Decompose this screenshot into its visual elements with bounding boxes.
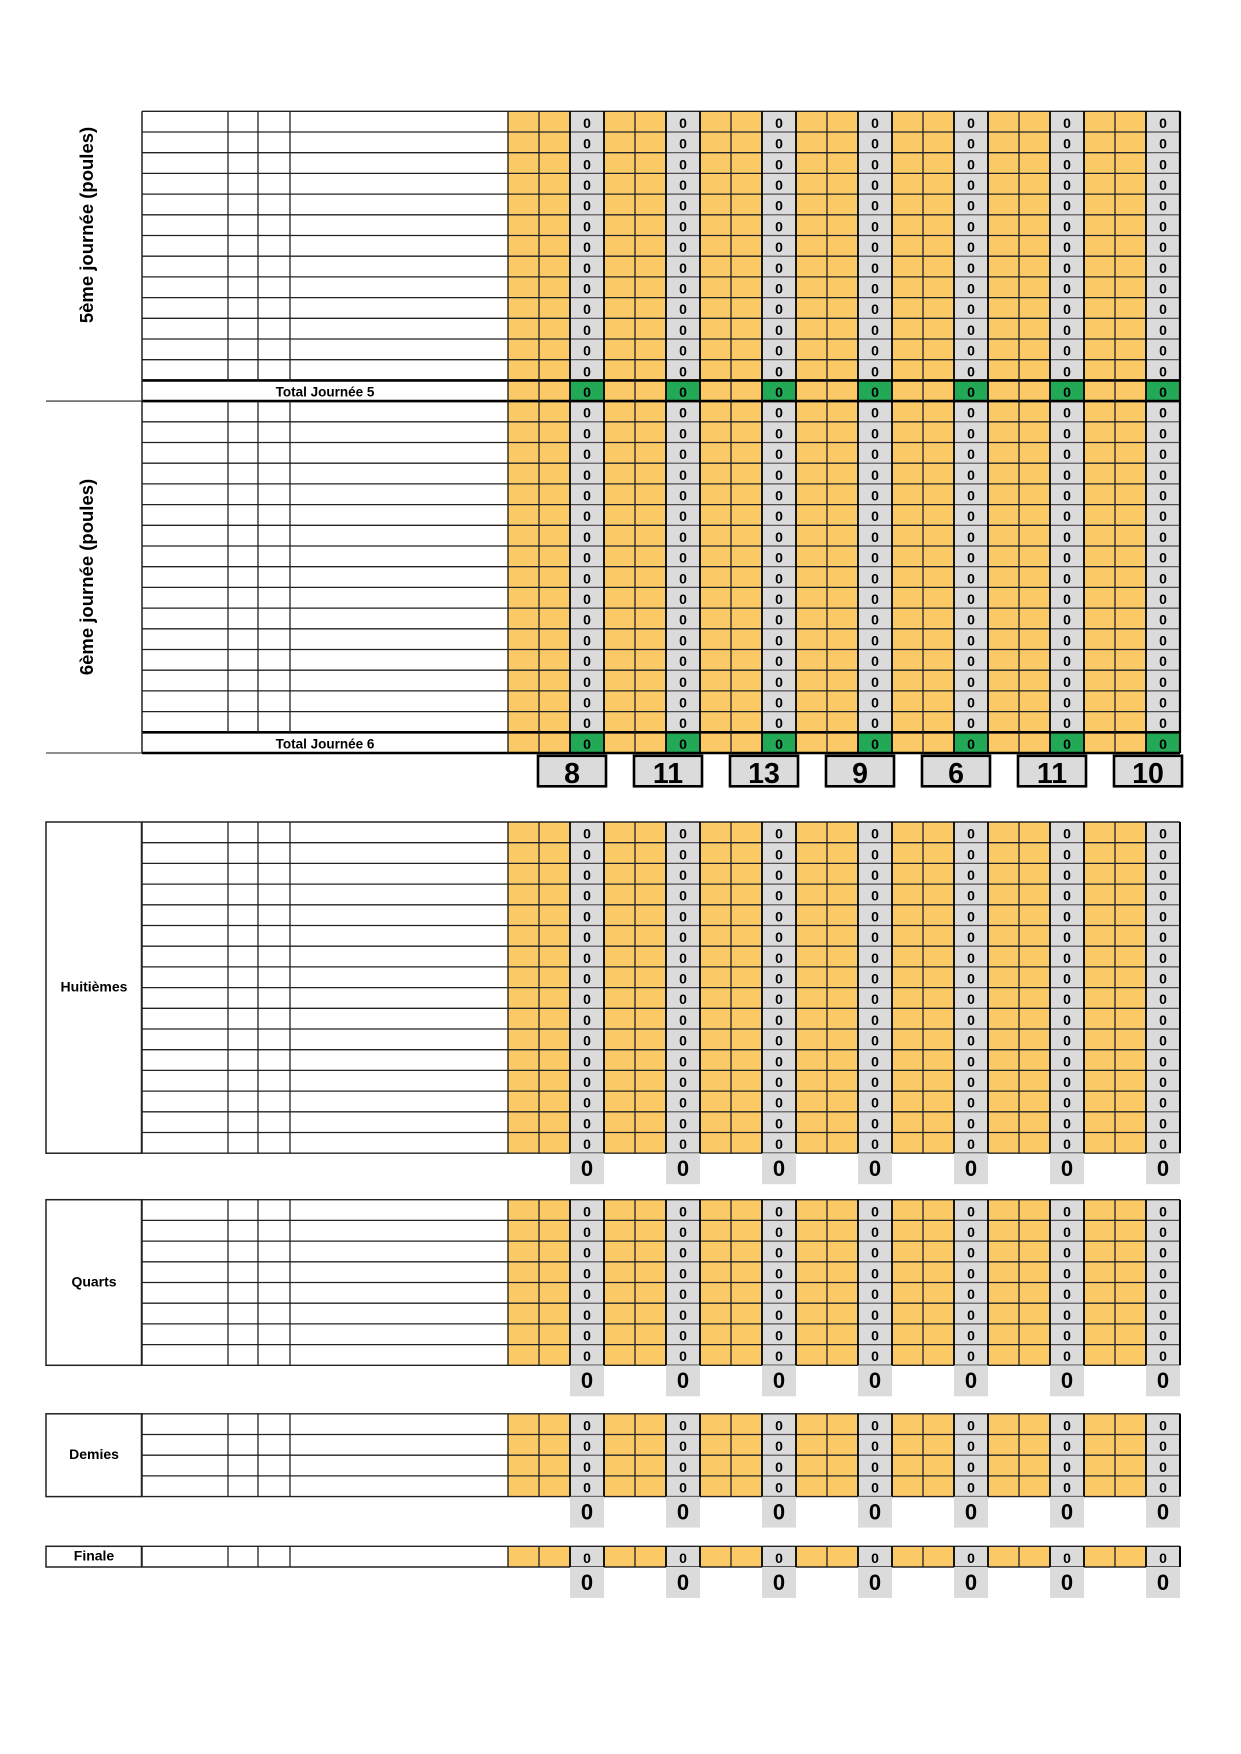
svg-text:0: 0: [583, 1033, 591, 1049]
svg-text:0: 0: [583, 1307, 591, 1323]
svg-text:0: 0: [1159, 653, 1167, 669]
svg-text:0: 0: [775, 467, 783, 483]
svg-text:0: 0: [871, 1307, 879, 1323]
svg-text:0: 0: [775, 1286, 783, 1302]
svg-text:0: 0: [1159, 1095, 1167, 1111]
svg-text:0: 0: [1063, 674, 1071, 690]
svg-text:0: 0: [871, 736, 879, 752]
svg-text:0: 0: [1063, 1245, 1071, 1261]
svg-text:0: 0: [1159, 715, 1167, 731]
svg-text:0: 0: [773, 1156, 785, 1181]
svg-text:0: 0: [679, 846, 687, 862]
svg-text:0: 0: [1159, 550, 1167, 566]
svg-text:0: 0: [967, 591, 975, 607]
svg-text:0: 0: [679, 1033, 687, 1049]
svg-text:0: 0: [1159, 1115, 1167, 1131]
svg-text:0: 0: [869, 1499, 881, 1524]
svg-text:0: 0: [1159, 1550, 1167, 1566]
svg-text:0: 0: [679, 908, 687, 924]
svg-text:0: 0: [1159, 929, 1167, 945]
svg-text:0: 0: [775, 674, 783, 690]
svg-text:Finale: Finale: [74, 1548, 115, 1564]
svg-text:0: 0: [775, 570, 783, 586]
svg-text:0: 0: [583, 1053, 591, 1069]
svg-text:0: 0: [871, 488, 879, 504]
svg-text:0: 0: [583, 405, 591, 421]
svg-text:0: 0: [871, 971, 879, 987]
svg-text:0: 0: [1063, 653, 1071, 669]
svg-text:0: 0: [1063, 281, 1071, 297]
svg-text:0: 0: [583, 826, 591, 842]
svg-text:0: 0: [583, 1328, 591, 1344]
svg-text:0: 0: [967, 156, 975, 172]
svg-text:0: 0: [583, 488, 591, 504]
svg-text:0: 0: [871, 1033, 879, 1049]
svg-text:0: 0: [871, 612, 879, 628]
svg-text:0: 0: [679, 467, 687, 483]
svg-text:0: 0: [1063, 425, 1071, 441]
svg-text:0: 0: [775, 218, 783, 234]
svg-text:0: 0: [583, 260, 591, 276]
svg-text:0: 0: [967, 1136, 975, 1152]
svg-text:0: 0: [775, 1074, 783, 1090]
svg-text:0: 0: [679, 1480, 687, 1496]
svg-text:0: 0: [967, 550, 975, 566]
svg-text:0: 0: [679, 322, 687, 338]
svg-text:0: 0: [967, 198, 975, 214]
svg-text:0: 0: [1063, 736, 1071, 752]
svg-text:0: 0: [967, 867, 975, 883]
svg-text:0: 0: [967, 1245, 975, 1261]
svg-text:0: 0: [677, 1499, 689, 1524]
svg-text:0: 0: [1159, 508, 1167, 524]
svg-text:0: 0: [775, 1348, 783, 1364]
svg-text:0: 0: [1063, 405, 1071, 421]
svg-text:0: 0: [871, 177, 879, 193]
svg-text:0: 0: [583, 115, 591, 131]
svg-text:0: 0: [871, 508, 879, 524]
svg-text:11: 11: [1037, 758, 1067, 790]
svg-text:0: 0: [871, 1438, 879, 1454]
svg-text:0: 0: [583, 467, 591, 483]
svg-text:0: 0: [967, 446, 975, 462]
svg-text:0: 0: [1063, 177, 1071, 193]
svg-text:0: 0: [775, 715, 783, 731]
svg-text:0: 0: [967, 632, 975, 648]
svg-text:0: 0: [871, 653, 879, 669]
svg-text:0: 0: [1159, 1245, 1167, 1261]
svg-text:0: 0: [1159, 1459, 1167, 1475]
svg-text:0: 0: [583, 508, 591, 524]
svg-text:0: 0: [679, 715, 687, 731]
svg-text:0: 0: [871, 674, 879, 690]
svg-text:0: 0: [583, 867, 591, 883]
svg-text:0: 0: [679, 405, 687, 421]
svg-text:0: 0: [773, 1368, 785, 1393]
svg-text:0: 0: [583, 570, 591, 586]
svg-text:0: 0: [1063, 322, 1071, 338]
svg-text:0: 0: [679, 281, 687, 297]
svg-text:0: 0: [1063, 1203, 1071, 1219]
svg-text:0: 0: [1159, 529, 1167, 545]
svg-text:0: 0: [775, 1417, 783, 1433]
svg-text:0: 0: [871, 1224, 879, 1240]
svg-text:0: 0: [967, 529, 975, 545]
svg-text:0: 0: [1159, 260, 1167, 276]
svg-text:0: 0: [679, 674, 687, 690]
svg-text:0: 0: [679, 653, 687, 669]
svg-text:0: 0: [677, 1570, 689, 1595]
svg-text:0: 0: [679, 156, 687, 172]
svg-text:0: 0: [775, 1265, 783, 1281]
svg-text:0: 0: [967, 467, 975, 483]
svg-text:0: 0: [1159, 1224, 1167, 1240]
svg-text:0: 0: [967, 1438, 975, 1454]
svg-text:0: 0: [775, 198, 783, 214]
svg-text:0: 0: [583, 1095, 591, 1111]
svg-text:0: 0: [1159, 1265, 1167, 1281]
svg-text:0: 0: [1159, 695, 1167, 711]
svg-text:0: 0: [679, 1550, 687, 1566]
svg-text:0: 0: [679, 1286, 687, 1302]
svg-text:0: 0: [679, 1265, 687, 1281]
svg-text:0: 0: [679, 301, 687, 317]
svg-text:0: 0: [1063, 467, 1071, 483]
svg-text:0: 0: [679, 446, 687, 462]
svg-text:0: 0: [1063, 867, 1071, 883]
svg-text:0: 0: [775, 363, 783, 379]
svg-text:0: 0: [1159, 1053, 1167, 1069]
svg-text:0: 0: [775, 446, 783, 462]
svg-text:0: 0: [677, 1368, 689, 1393]
svg-text:0: 0: [871, 1459, 879, 1475]
svg-text:0: 0: [1063, 1053, 1071, 1069]
svg-text:0: 0: [967, 1224, 975, 1240]
svg-text:0: 0: [1063, 715, 1071, 731]
svg-text:0: 0: [679, 136, 687, 152]
svg-text:0: 0: [583, 1012, 591, 1028]
svg-text:0: 0: [1159, 156, 1167, 172]
svg-text:0: 0: [871, 425, 879, 441]
svg-text:0: 0: [679, 1245, 687, 1261]
svg-text:0: 0: [871, 846, 879, 862]
svg-text:0: 0: [1063, 1136, 1071, 1152]
svg-text:0: 0: [679, 550, 687, 566]
svg-text:0: 0: [775, 260, 783, 276]
svg-text:0: 0: [967, 950, 975, 966]
svg-text:0: 0: [1063, 1417, 1071, 1433]
svg-text:0: 0: [583, 653, 591, 669]
svg-text:0: 0: [581, 1499, 593, 1524]
svg-text:0: 0: [679, 867, 687, 883]
svg-text:13: 13: [748, 758, 780, 790]
svg-text:5ème journée (poules): 5ème journée (poules): [76, 127, 97, 323]
svg-text:0: 0: [1063, 971, 1071, 987]
svg-text:Total Journée 6: Total Journée 6: [276, 736, 375, 751]
svg-text:0: 0: [967, 239, 975, 255]
svg-text:0: 0: [583, 384, 591, 400]
svg-text:0: 0: [1063, 1348, 1071, 1364]
svg-text:0: 0: [1159, 446, 1167, 462]
svg-text:0: 0: [871, 467, 879, 483]
svg-text:0: 0: [775, 591, 783, 607]
svg-text:0: 0: [967, 322, 975, 338]
svg-text:0: 0: [775, 695, 783, 711]
svg-text:10: 10: [1132, 758, 1164, 790]
svg-text:0: 0: [679, 1417, 687, 1433]
svg-text:0: 0: [679, 1136, 687, 1152]
svg-text:0: 0: [679, 1012, 687, 1028]
svg-text:0: 0: [967, 653, 975, 669]
svg-text:0: 0: [775, 529, 783, 545]
svg-text:0: 0: [583, 950, 591, 966]
svg-text:0: 0: [679, 632, 687, 648]
svg-text:0: 0: [775, 550, 783, 566]
svg-text:0: 0: [583, 1348, 591, 1364]
svg-text:0: 0: [1159, 971, 1167, 987]
svg-text:0: 0: [775, 1224, 783, 1240]
svg-text:0: 0: [679, 888, 687, 904]
svg-text:0: 0: [871, 529, 879, 545]
svg-text:0: 0: [967, 405, 975, 421]
svg-text:0: 0: [775, 929, 783, 945]
svg-text:0: 0: [1159, 736, 1167, 752]
svg-text:0: 0: [1063, 218, 1071, 234]
svg-text:0: 0: [871, 1115, 879, 1131]
svg-text:0: 0: [1159, 136, 1167, 152]
svg-text:0: 0: [1159, 846, 1167, 862]
svg-text:0: 0: [583, 301, 591, 317]
svg-text:0: 0: [581, 1368, 593, 1393]
svg-text:0: 0: [583, 1480, 591, 1496]
svg-text:0: 0: [871, 950, 879, 966]
svg-text:0: 0: [679, 971, 687, 987]
svg-text:0: 0: [679, 529, 687, 545]
svg-text:0: 0: [1063, 826, 1071, 842]
svg-text:0: 0: [679, 1307, 687, 1323]
svg-text:Quarts: Quarts: [71, 1273, 116, 1289]
svg-text:0: 0: [775, 508, 783, 524]
svg-text:0: 0: [775, 612, 783, 628]
svg-text:0: 0: [967, 1480, 975, 1496]
svg-text:0: 0: [967, 991, 975, 1007]
svg-text:9: 9: [852, 758, 868, 790]
svg-text:0: 0: [967, 826, 975, 842]
svg-text:0: 0: [775, 425, 783, 441]
svg-text:0: 0: [967, 1328, 975, 1344]
svg-text:0: 0: [967, 384, 975, 400]
svg-text:0: 0: [775, 1480, 783, 1496]
svg-text:0: 0: [1159, 612, 1167, 628]
svg-text:0: 0: [1063, 1033, 1071, 1049]
svg-text:0: 0: [1063, 136, 1071, 152]
svg-text:0: 0: [775, 867, 783, 883]
svg-text:0: 0: [871, 218, 879, 234]
svg-text:0: 0: [775, 908, 783, 924]
svg-text:0: 0: [1159, 1136, 1167, 1152]
svg-text:0: 0: [1063, 1438, 1071, 1454]
svg-text:0: 0: [871, 632, 879, 648]
svg-text:0: 0: [871, 1480, 879, 1496]
svg-text:0: 0: [869, 1570, 881, 1595]
svg-text:0: 0: [871, 1550, 879, 1566]
svg-text:0: 0: [967, 1012, 975, 1028]
svg-text:0: 0: [775, 826, 783, 842]
svg-text:0: 0: [679, 612, 687, 628]
svg-text:0: 0: [1063, 1550, 1071, 1566]
svg-text:0: 0: [871, 115, 879, 131]
svg-text:0: 0: [1063, 570, 1071, 586]
svg-text:0: 0: [871, 301, 879, 317]
svg-text:0: 0: [583, 1074, 591, 1090]
svg-text:0: 0: [1159, 1033, 1167, 1049]
svg-text:0: 0: [775, 1459, 783, 1475]
svg-text:0: 0: [583, 591, 591, 607]
svg-text:0: 0: [1159, 301, 1167, 317]
svg-text:0: 0: [871, 991, 879, 1007]
svg-text:0: 0: [967, 136, 975, 152]
svg-text:0: 0: [1159, 363, 1167, 379]
svg-text:0: 0: [583, 888, 591, 904]
svg-text:0: 0: [871, 570, 879, 586]
svg-text:0: 0: [775, 1095, 783, 1111]
svg-text:0: 0: [679, 736, 687, 752]
svg-text:0: 0: [967, 363, 975, 379]
svg-text:0: 0: [965, 1156, 977, 1181]
svg-text:0: 0: [775, 1012, 783, 1028]
svg-text:0: 0: [583, 363, 591, 379]
svg-text:0: 0: [1063, 950, 1071, 966]
svg-text:0: 0: [1159, 488, 1167, 504]
svg-text:0: 0: [583, 1286, 591, 1302]
svg-text:0: 0: [1159, 1307, 1167, 1323]
svg-text:0: 0: [871, 343, 879, 359]
svg-text:0: 0: [677, 1156, 689, 1181]
svg-text:0: 0: [1159, 1286, 1167, 1302]
svg-text:0: 0: [871, 1265, 879, 1281]
svg-text:0: 0: [1063, 1095, 1071, 1111]
svg-text:0: 0: [775, 971, 783, 987]
svg-text:0: 0: [1063, 1307, 1071, 1323]
svg-text:0: 0: [967, 488, 975, 504]
svg-text:0: 0: [1159, 115, 1167, 131]
svg-text:0: 0: [871, 322, 879, 338]
svg-text:0: 0: [583, 1417, 591, 1433]
svg-text:0: 0: [1061, 1368, 1073, 1393]
svg-text:0: 0: [775, 950, 783, 966]
svg-text:0: 0: [1159, 632, 1167, 648]
svg-text:0: 0: [583, 1115, 591, 1131]
svg-text:0: 0: [1063, 1328, 1071, 1344]
svg-text:0: 0: [583, 695, 591, 711]
svg-text:0: 0: [775, 405, 783, 421]
svg-text:0: 0: [775, 846, 783, 862]
svg-text:0: 0: [1063, 1480, 1071, 1496]
svg-text:0: 0: [1159, 1438, 1167, 1454]
svg-text:0: 0: [871, 156, 879, 172]
svg-text:0: 0: [1159, 322, 1167, 338]
svg-text:Demies: Demies: [69, 1446, 119, 1462]
svg-text:0: 0: [1063, 591, 1071, 607]
svg-text:0: 0: [967, 425, 975, 441]
svg-text:0: 0: [775, 991, 783, 1007]
svg-text:11: 11: [653, 758, 683, 790]
svg-text:0: 0: [1063, 1224, 1071, 1240]
svg-text:0: 0: [1063, 260, 1071, 276]
svg-text:0: 0: [967, 1459, 975, 1475]
svg-text:0: 0: [871, 384, 879, 400]
svg-text:0: 0: [583, 736, 591, 752]
svg-text:0: 0: [1159, 405, 1167, 421]
svg-text:0: 0: [775, 239, 783, 255]
svg-text:0: 0: [1063, 612, 1071, 628]
svg-text:0: 0: [1159, 950, 1167, 966]
svg-text:0: 0: [775, 115, 783, 131]
svg-text:0: 0: [1063, 239, 1071, 255]
svg-text:0: 0: [583, 674, 591, 690]
svg-text:0: 0: [871, 1053, 879, 1069]
svg-text:8: 8: [564, 758, 580, 790]
svg-text:0: 0: [775, 888, 783, 904]
svg-text:0: 0: [775, 281, 783, 297]
svg-text:0: 0: [583, 343, 591, 359]
svg-text:0: 0: [1063, 550, 1071, 566]
svg-text:0: 0: [775, 1245, 783, 1261]
svg-text:0: 0: [583, 1245, 591, 1261]
svg-text:0: 0: [1063, 1286, 1071, 1302]
svg-text:0: 0: [1063, 198, 1071, 214]
svg-text:0: 0: [967, 281, 975, 297]
svg-text:0: 0: [871, 695, 879, 711]
svg-text:0: 0: [1061, 1570, 1073, 1595]
svg-text:0: 0: [679, 695, 687, 711]
svg-text:0: 0: [775, 322, 783, 338]
svg-text:0: 0: [581, 1570, 593, 1595]
svg-text:0: 0: [1063, 156, 1071, 172]
svg-text:0: 0: [1159, 908, 1167, 924]
svg-text:0: 0: [679, 1074, 687, 1090]
svg-text:0: 0: [871, 1074, 879, 1090]
svg-text:0: 0: [679, 508, 687, 524]
svg-text:0: 0: [583, 846, 591, 862]
svg-text:6: 6: [948, 758, 964, 790]
svg-text:0: 0: [679, 1203, 687, 1219]
svg-text:0: 0: [583, 1224, 591, 1240]
svg-text:0: 0: [871, 260, 879, 276]
svg-text:0: 0: [871, 1012, 879, 1028]
svg-text:0: 0: [1159, 1480, 1167, 1496]
svg-text:0: 0: [871, 446, 879, 462]
svg-text:0: 0: [871, 1328, 879, 1344]
svg-text:0: 0: [583, 177, 591, 193]
svg-text:0: 0: [967, 929, 975, 945]
svg-text:0: 0: [775, 384, 783, 400]
svg-text:0: 0: [679, 570, 687, 586]
svg-text:0: 0: [775, 1203, 783, 1219]
svg-text:0: 0: [1159, 888, 1167, 904]
svg-text:0: 0: [1063, 908, 1071, 924]
svg-text:0: 0: [1159, 570, 1167, 586]
svg-text:0: 0: [1063, 115, 1071, 131]
svg-text:0: 0: [967, 1307, 975, 1323]
svg-text:0: 0: [775, 736, 783, 752]
svg-text:0: 0: [679, 1328, 687, 1344]
svg-text:0: 0: [1159, 1012, 1167, 1028]
svg-text:0: 0: [679, 425, 687, 441]
svg-text:0: 0: [1159, 1328, 1167, 1344]
svg-text:0: 0: [583, 1136, 591, 1152]
svg-text:0: 0: [583, 971, 591, 987]
